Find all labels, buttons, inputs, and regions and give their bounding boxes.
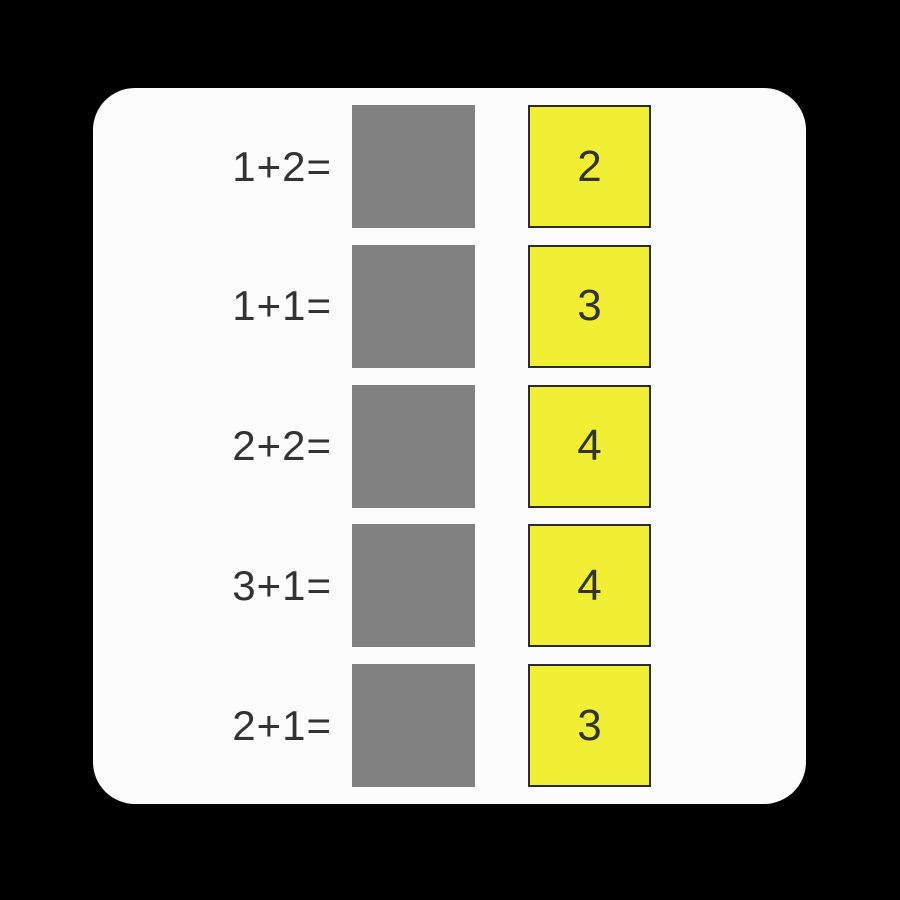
equation-row: 2+2= 4	[93, 385, 806, 508]
answer-drop-slot[interactable]	[352, 245, 475, 368]
answer-tile[interactable]: 4	[528, 524, 651, 647]
answer-tile[interactable]: 3	[528, 245, 651, 368]
equation-label: 3+1=	[93, 524, 332, 647]
equation-row: 1+2= 2	[93, 105, 806, 228]
game-card: 1+2= 2 1+1= 3 2+2= 4 3+1= 4 2+1= 3	[93, 88, 806, 804]
answer-drop-slot[interactable]	[352, 385, 475, 508]
equation-label: 2+2=	[93, 385, 332, 508]
equation-row: 3+1= 4	[93, 524, 806, 647]
equation-label: 2+1=	[93, 664, 332, 787]
app-background: 1+2= 2 1+1= 3 2+2= 4 3+1= 4 2+1= 3	[0, 0, 900, 900]
equation-row: 2+1= 3	[93, 664, 806, 787]
answer-tile[interactable]: 3	[528, 664, 651, 787]
answer-drop-slot[interactable]	[352, 524, 475, 647]
answer-tile[interactable]: 4	[528, 385, 651, 508]
answer-drop-slot[interactable]	[352, 664, 475, 787]
equation-row: 1+1= 3	[93, 245, 806, 368]
equation-label: 1+1=	[93, 245, 332, 368]
answer-drop-slot[interactable]	[352, 105, 475, 228]
answer-tile[interactable]: 2	[528, 105, 651, 228]
equation-label: 1+2=	[93, 105, 332, 228]
